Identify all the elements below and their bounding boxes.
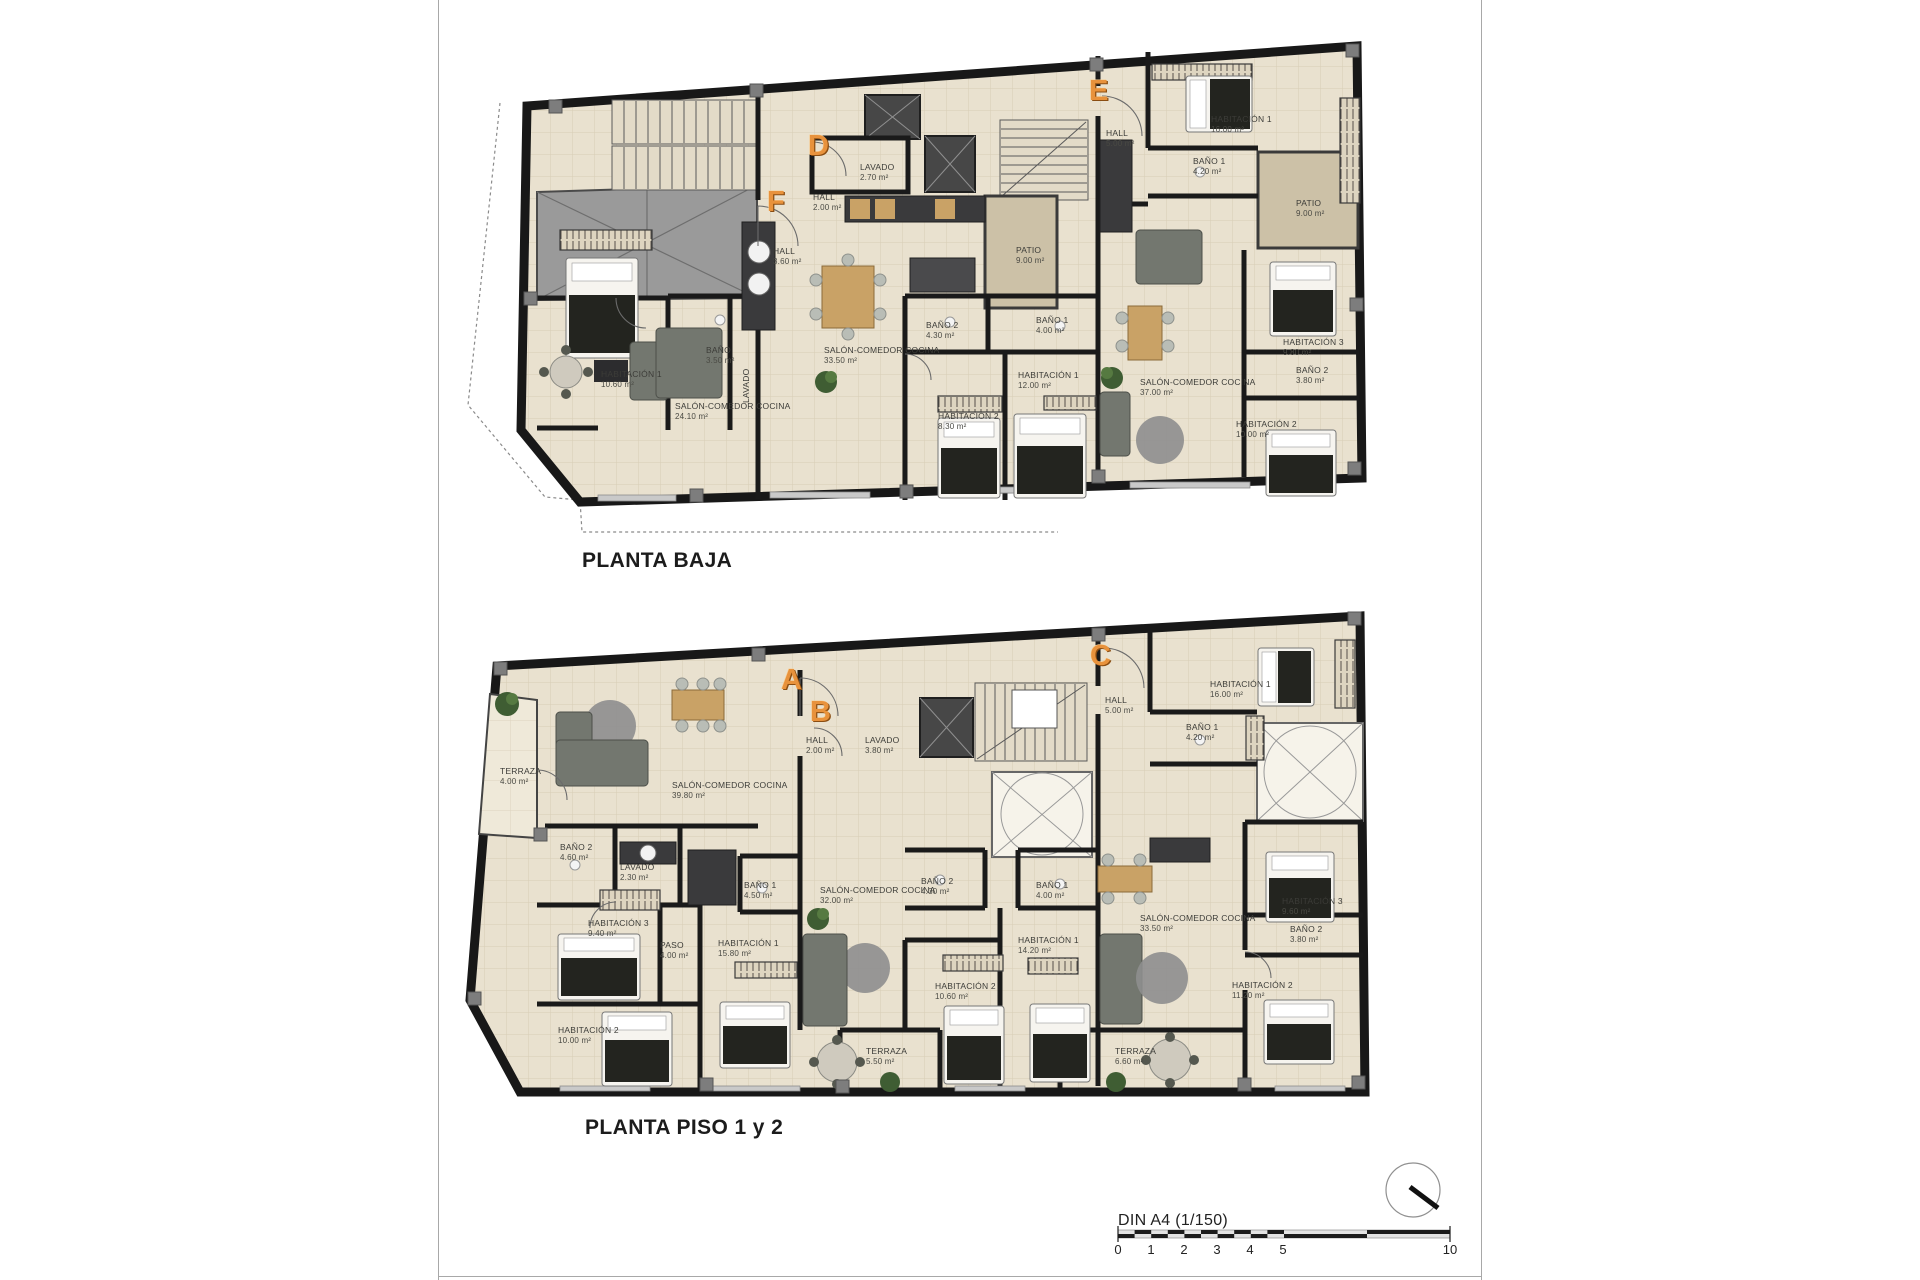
room-label: TERRAZA4.00 m² (500, 766, 541, 787)
dining-table (672, 678, 726, 732)
apartment-letter-b: B (810, 696, 831, 729)
plan-title-planta-piso: PLANTA PISO 1 y 2 (585, 1116, 783, 1140)
room-label: HABITACIÓN 39.80 m² (1283, 337, 1344, 358)
scale-tick: 2 (1180, 1242, 1187, 1257)
stairs-core (975, 683, 1087, 761)
room-label: TERRAZA6.60 m² (1115, 1046, 1156, 1067)
bed (602, 1012, 672, 1086)
floor-plan-sheet: F D E A B C HALL3.60 m² HABITACIÓN 110.6… (0, 0, 1920, 1280)
apartment-letter-c: C (1090, 640, 1111, 673)
room-label: HABITACIÓN 116.00 m² (1211, 114, 1272, 135)
room-label: BAÑO 24.30 m² (921, 876, 953, 897)
room-label: HABITACIÓN 211.20 m² (1232, 980, 1293, 1001)
room-label: BAÑO 23.80 m² (1290, 924, 1322, 945)
room-label: TERRAZA5.50 m² (866, 1046, 907, 1067)
scale-tick: 0 (1114, 1242, 1121, 1257)
room-label: BAÑO 14.20 m² (1186, 722, 1218, 743)
floor-plan-graphics (0, 0, 1920, 1280)
scale-tick: 4 (1246, 1242, 1253, 1257)
room-label: HABITACIÓN 210.00 m² (558, 1025, 619, 1046)
room-label: LAVADO2.30 m² (620, 862, 654, 883)
apartment-letter-e: E (1089, 75, 1108, 108)
room-label: BAÑO 24.60 m² (560, 842, 592, 863)
room-label: LAVADO3.80 m² (865, 735, 899, 756)
apartment-letter-f: F (767, 186, 785, 219)
room-label: HABITACIÓN 39.40 m² (588, 918, 649, 939)
room-label: BAÑO 23.80 m² (1296, 365, 1328, 386)
bed (558, 934, 640, 1000)
room-label: SALÓN-COMEDOR COCINA24.10 m² (675, 401, 790, 422)
scale-tick: 10 (1443, 1242, 1457, 1257)
room-label: HABITACIÓN 39.60 m² (1282, 896, 1343, 917)
bed (1264, 1000, 1334, 1064)
room-label: BAÑO 14.50 m² (744, 880, 776, 901)
room-label: PASO4.00 m² (660, 940, 689, 961)
room-label: SALÓN-COMEDOR COCINA39.80 m² (672, 780, 787, 801)
north-indicator-icon (1386, 1163, 1440, 1217)
room-label: HABITACIÓN 210.00 m² (1236, 419, 1297, 440)
room-label: HALL5.00 m² (1106, 128, 1135, 149)
room-label: HABITACIÓN 115.80 m² (718, 938, 779, 959)
room-label: HALL3.60 m² (773, 246, 802, 267)
bed (720, 1002, 790, 1068)
room-label: SALÓN-COMEDOR COCINA33.50 m² (824, 345, 939, 366)
room-label: HABITACIÓN 112.00 m² (1018, 370, 1079, 391)
room-label: LAVADO2.70 m² (860, 162, 894, 183)
room-label: HABITACIÓN 210.60 m² (935, 981, 996, 1002)
elevator (920, 698, 973, 757)
bed (1270, 262, 1336, 336)
room-label: SALÓN-COMEDOR COCINA37.00 m² (1140, 377, 1255, 398)
room-label: HABITACIÓN 110.60 m² (601, 369, 662, 390)
scale-label: DIN A4 (1/150) (1118, 1212, 1228, 1230)
room-label: BAÑO3.50 m² (706, 345, 735, 366)
room-label: BAÑO 14.20 m² (1193, 156, 1225, 177)
room-label: HABITACIÓN 116.00 m² (1210, 679, 1271, 700)
room-label: BAÑO 14.00 m² (1036, 880, 1068, 901)
scale-tick: 1 (1147, 1242, 1154, 1257)
apartment-letter-a: A (781, 664, 802, 697)
scale-tick: 3 (1213, 1242, 1220, 1257)
room-label: HALL2.00 m² (806, 735, 835, 756)
bed (944, 1006, 1004, 1084)
room-label: BAÑO 24.30 m² (926, 320, 958, 341)
room-label: HALL2.00 m² (813, 192, 842, 213)
bed (1014, 414, 1086, 498)
room-label: HABITACIÓN 28.30 m² (938, 411, 999, 432)
room-label: SALÓN-COMEDOR COCINA32.00 m² (820, 885, 935, 906)
room-label: PATIO9.00 m² (1016, 245, 1045, 266)
plan-title-planta-baja: PLANTA BAJA (582, 549, 732, 573)
bed (566, 258, 638, 358)
room-label: LAVADO (741, 369, 752, 403)
room-label: HALL5.00 m² (1105, 695, 1134, 716)
scale-tick: 5 (1279, 1242, 1286, 1257)
room-label: BAÑO 14.00 m² (1036, 315, 1068, 336)
room-label: HABITACIÓN 114.20 m² (1018, 935, 1079, 956)
room-label: SALÓN-COMEDOR COCINA33.50 m² (1140, 913, 1255, 934)
apartment-letter-d: D (808, 130, 829, 163)
room-label: PATIO9.00 m² (1296, 198, 1325, 219)
bed (1030, 1004, 1090, 1082)
